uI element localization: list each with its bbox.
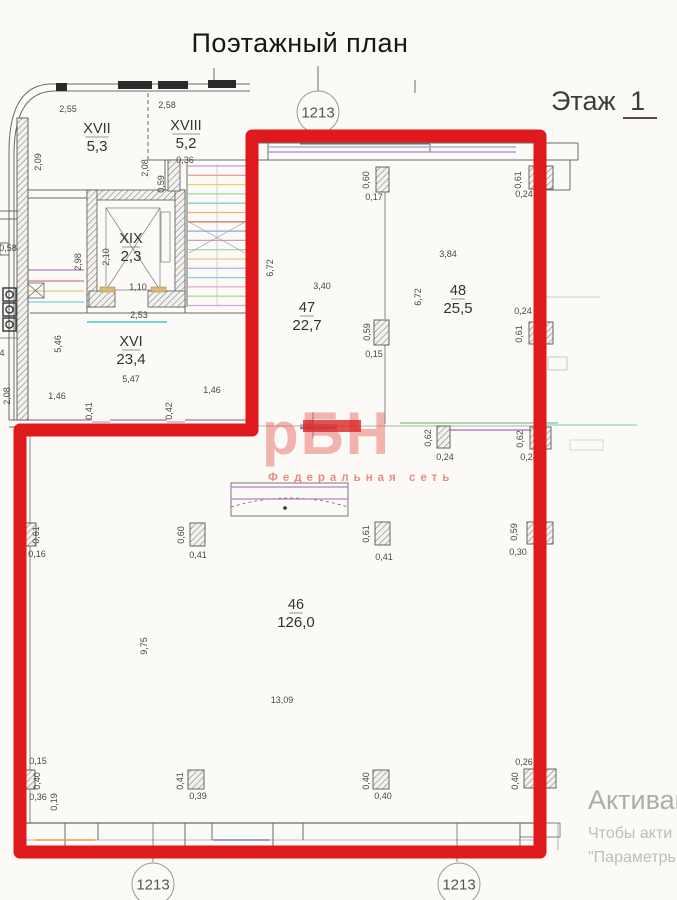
dimension-label: 0,61	[513, 171, 523, 189]
axis-marker-label: 1213	[301, 105, 334, 122]
hatched-pier	[188, 770, 204, 789]
dimension-label: 6,72	[265, 259, 275, 277]
dimension-label: 4	[0, 348, 5, 358]
dimension-label: 0,42	[164, 402, 174, 420]
dimension-label: 0,59	[156, 175, 166, 193]
dimension-label: 0,16	[28, 549, 46, 559]
hatched-pier	[376, 167, 389, 192]
dimension-label: 0,41	[375, 552, 393, 562]
room-area: 126,0	[277, 614, 315, 631]
dimension-label: 0,40	[510, 772, 520, 790]
dimension-label: 2,58	[158, 100, 176, 110]
dimension-label: 0,59	[509, 523, 519, 541]
hatched-pier	[17, 118, 28, 420]
dimension-label: 5,47	[122, 374, 140, 384]
dimension-label: 2,55	[59, 104, 77, 114]
room-number: 48	[450, 283, 466, 299]
windows-activation-watermark: Активац Чтобы акти "Параметрь	[588, 785, 677, 867]
dimension-label: 0,30	[509, 547, 527, 557]
dimension-label: 1,10	[129, 282, 147, 292]
dimension-label: 0,24	[515, 189, 533, 199]
hatched-pier	[373, 770, 389, 789]
dimension-label: 0,62	[423, 429, 433, 447]
dimension-label: 0,40	[361, 772, 371, 790]
room-area: 5,2	[176, 135, 197, 152]
room-number: XVI	[119, 334, 142, 350]
room-area: 25,5	[443, 300, 472, 317]
agency-watermark-logo: рБН	[262, 404, 422, 464]
floor-number: 1	[623, 86, 657, 119]
window-sill-bars	[56, 80, 236, 91]
dimension-label: 13,09	[271, 695, 294, 705]
dimension-label: 0,60	[361, 171, 371, 189]
activation-line2: Чтобы акти	[588, 825, 677, 843]
dimension-label: 1,46	[48, 391, 66, 401]
dimension-label: 0,58	[0, 243, 17, 253]
room-number: XVIII	[170, 118, 201, 134]
dimension-label: 2,10	[101, 248, 111, 266]
agency-watermark-bar	[303, 420, 361, 432]
activation-line3: "Параметрь	[588, 849, 677, 867]
dimension-label: 0,61	[514, 325, 524, 343]
hatched-pier	[374, 320, 389, 345]
dimension-label: 0,15	[365, 349, 383, 359]
dimension-label: 9,75	[139, 637, 149, 655]
dimension-label: 0,36	[176, 155, 194, 165]
dimension-label: 0,24	[514, 306, 532, 316]
dimension-label: 5,46	[53, 335, 63, 353]
axis-marker-label: 1213	[136, 877, 169, 894]
dimension-label: 0,19	[49, 793, 59, 811]
floor-label: Этаж	[551, 86, 616, 116]
dimension-label: 2,98	[73, 253, 83, 271]
room-number: XIX	[119, 231, 143, 247]
room-number: 47	[299, 300, 315, 316]
dimension-label: 0,62	[515, 430, 525, 448]
dimension-label: 3,40	[313, 281, 331, 291]
dimension-label: 0,39	[189, 791, 207, 801]
room-area: 23,4	[116, 351, 145, 368]
room-area: 5,3	[87, 138, 108, 155]
dimension-label: 2,08	[140, 159, 150, 177]
hatched-pier	[375, 522, 390, 545]
room-number: 46	[288, 597, 304, 613]
page-title: Поэтажный план	[120, 28, 480, 59]
room-number: XVII	[83, 121, 110, 137]
dimension-label: 2,08	[2, 387, 12, 405]
floor-plan-page: 2,552,580,361,102,535,471,461,460,170,24…	[0, 0, 677, 900]
dimension-label: 0,60	[176, 526, 186, 544]
dimension-label: 0,15	[29, 756, 47, 766]
hatched-pier	[190, 523, 205, 546]
activation-line1: Активац	[588, 785, 677, 816]
agency-watermark-subtitle: Федеральная сеть	[268, 472, 454, 484]
dimension-label: 0,40	[32, 772, 42, 790]
dimension-label: 0,40	[374, 791, 392, 801]
dimension-label: 0,41	[175, 772, 185, 790]
dimension-label: 0,26	[515, 757, 533, 767]
dimension-label: 0,41	[189, 550, 207, 560]
dimension-label: 0,24	[436, 452, 454, 462]
dimension-label: 6,72	[413, 288, 423, 306]
dimension-label: 0,36	[29, 792, 47, 802]
dimension-label: 2,53	[130, 310, 148, 320]
dimension-label: 0,41	[84, 402, 94, 420]
highlight-outline	[20, 136, 540, 852]
dimension-label: 1,46	[203, 385, 221, 395]
room-area: 2,3	[121, 248, 142, 265]
dimension-label: 0,61	[361, 525, 371, 543]
dimension-label: 2,09	[33, 153, 43, 171]
dimension-label: 0,59	[362, 323, 372, 341]
dimension-label: 3,84	[439, 249, 457, 259]
floor-indicator: Этаж 1	[551, 86, 657, 117]
hatched-pier	[437, 426, 450, 448]
dimension-label: 0,61	[31, 526, 41, 544]
plan-labels: 2,552,580,361,102,535,471,461,460,170,24…	[0, 91, 538, 900]
dimension-label: 0,17	[365, 192, 383, 202]
axis-marker-label: 1213	[442, 877, 475, 894]
room-area: 22,7	[292, 317, 321, 334]
